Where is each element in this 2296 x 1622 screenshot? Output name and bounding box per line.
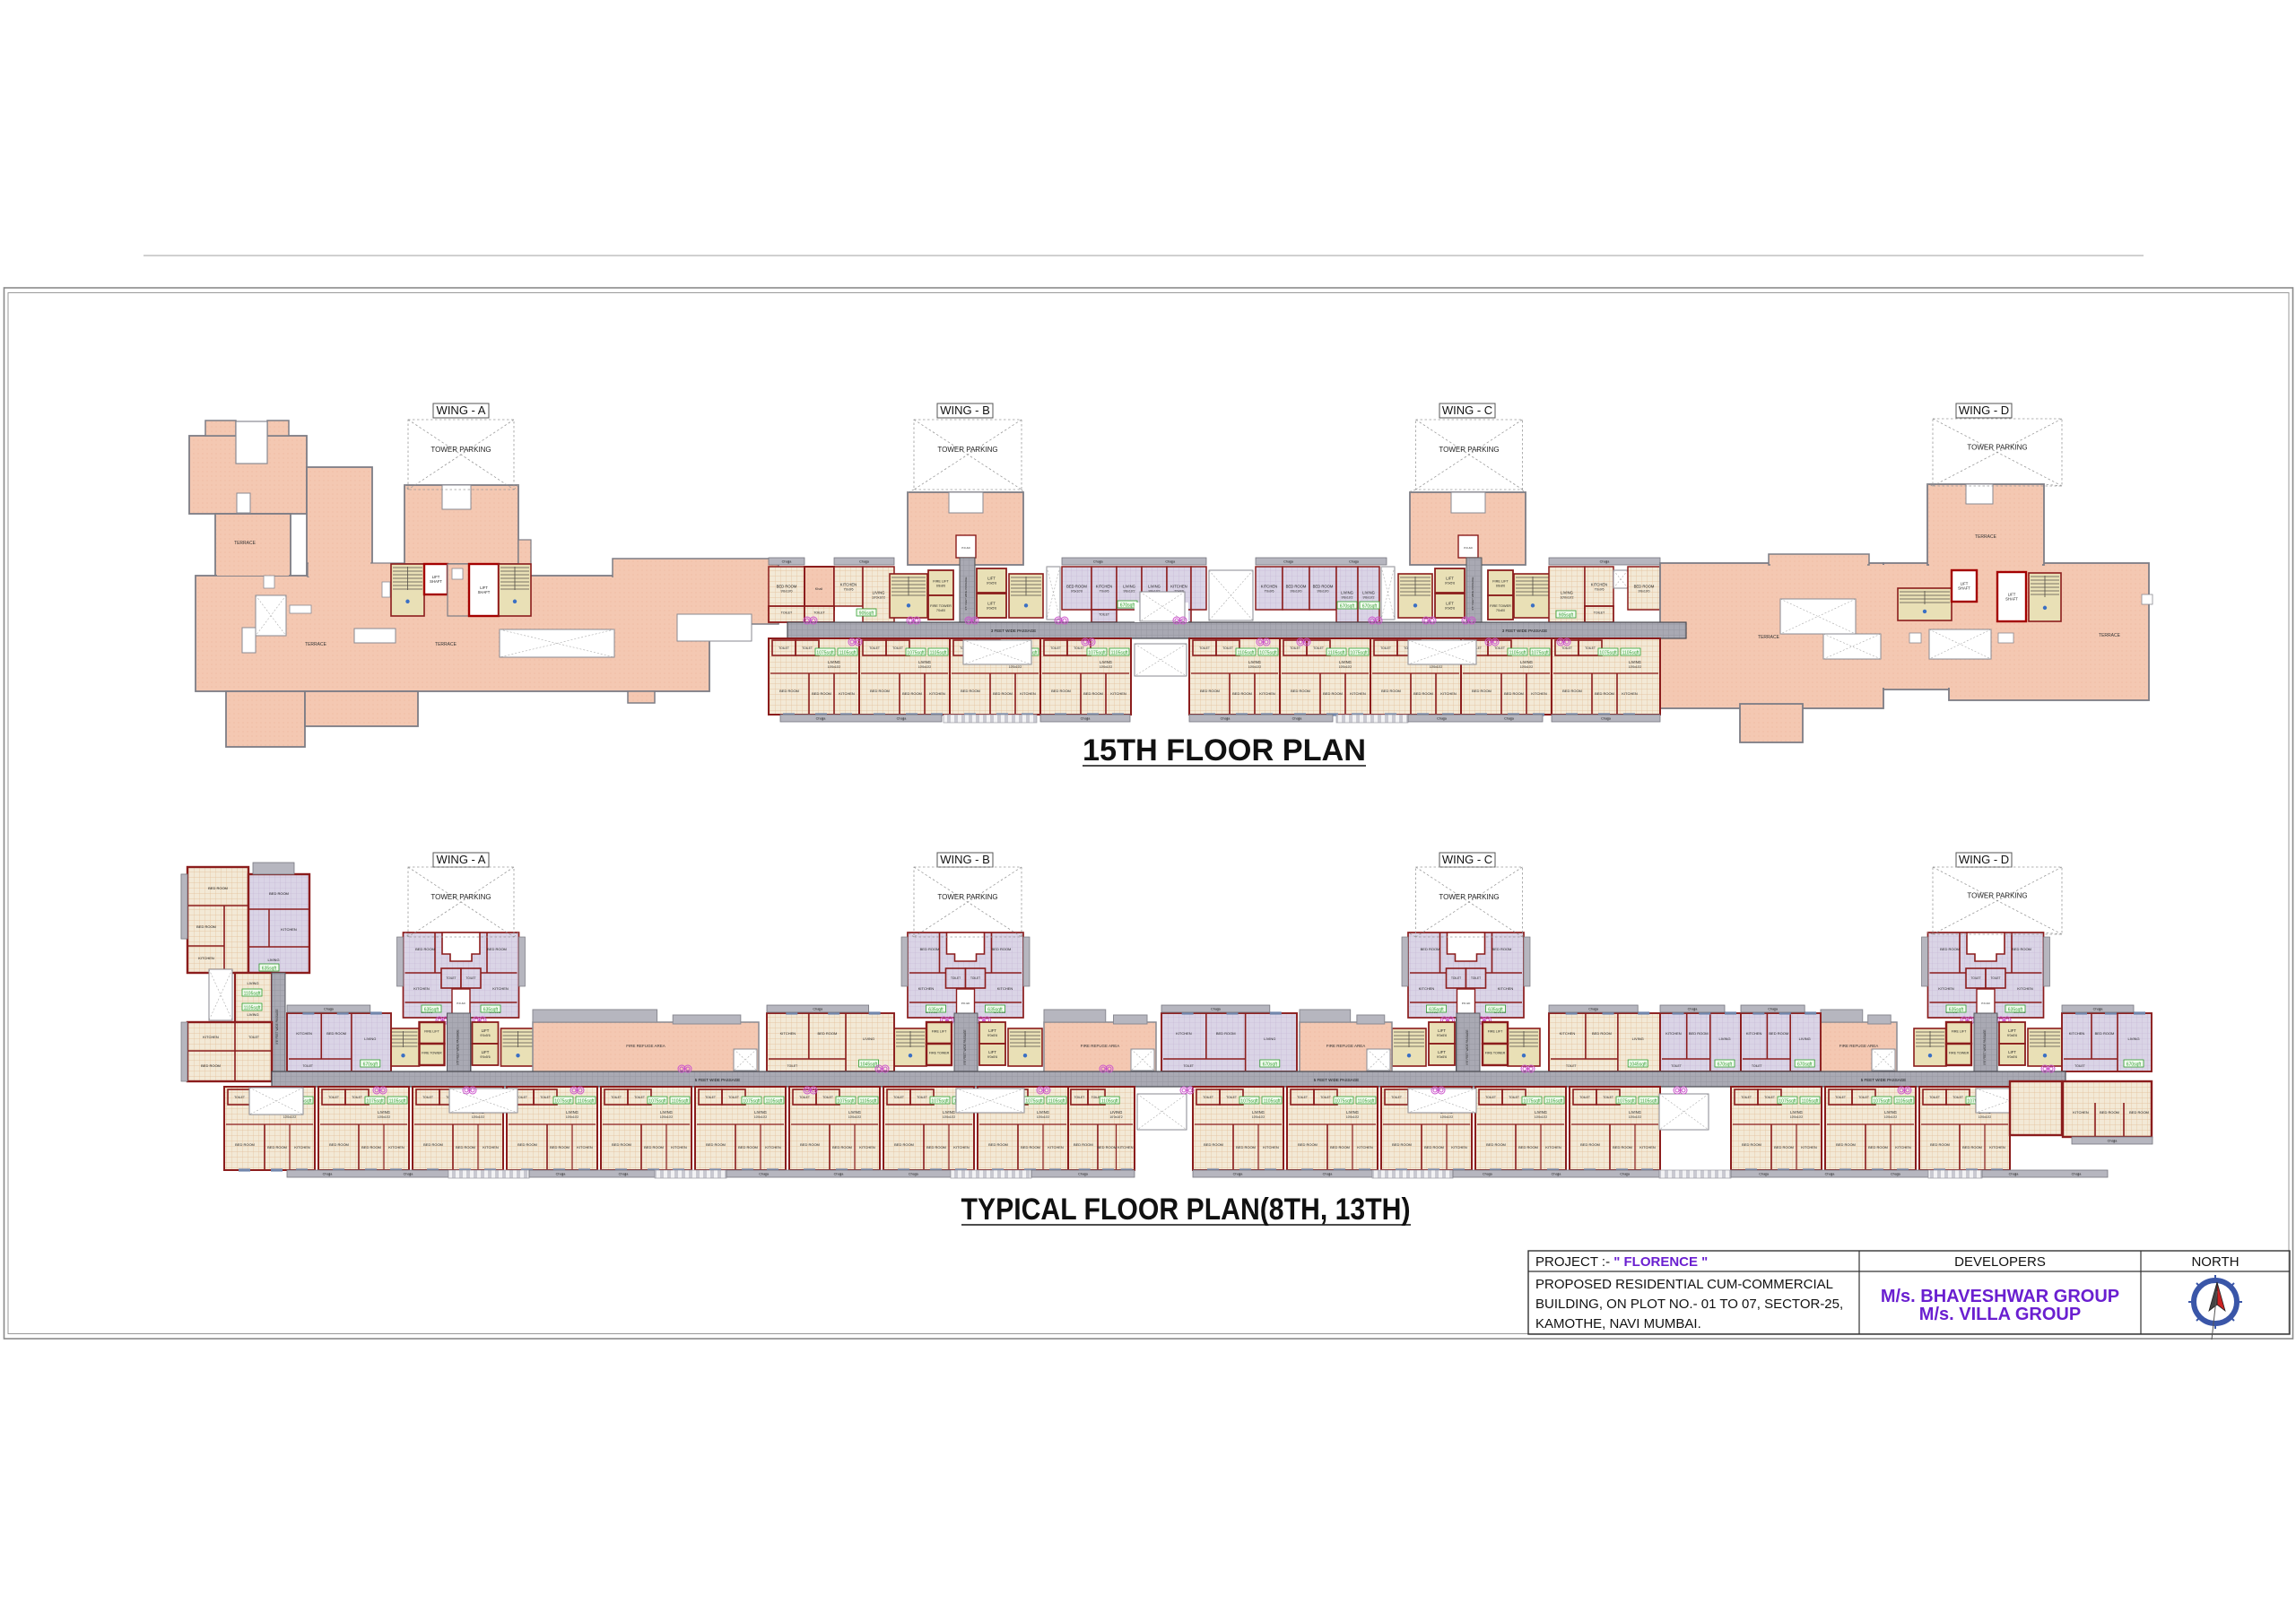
svg-text:10'0x10'2: 10'0x10'2	[848, 1115, 861, 1119]
svg-text:Chajja: Chajja	[1292, 717, 1303, 721]
svg-text:TOILET: TOILET	[1929, 1096, 1940, 1099]
svg-text:3 FEET WIDE PASSAGE: 3 FEET WIDE PASSAGE	[991, 629, 1037, 633]
svg-text:10'0x10'2: 10'0x10'2	[1790, 1115, 1803, 1119]
svg-text:BED ROOM: BED ROOM	[1200, 689, 1220, 693]
svg-text:BED ROOM: BED ROOM	[612, 1142, 631, 1147]
svg-text:BED ROOM: BED ROOM	[329, 1142, 349, 1147]
svg-text:KITCHEN: KITCHEN	[388, 1145, 404, 1149]
svg-text:1105sqft: 1105sqft	[1358, 1099, 1375, 1105]
svg-text:KITCHEN: KITCHEN	[1639, 1145, 1656, 1149]
svg-text:TOILET: TOILET	[352, 1096, 362, 1099]
svg-text:TOWER PARKING: TOWER PARKING	[1967, 892, 2027, 900]
svg-text:Chajja: Chajja	[1081, 717, 1091, 721]
svg-text:WING - C: WING - C	[1442, 853, 1492, 866]
svg-text:TOILET: TOILET	[1297, 1096, 1308, 1099]
svg-text:KITCHEN: KITCHEN	[1261, 585, 1277, 589]
svg-text:WING - D: WING - D	[1959, 403, 2009, 417]
svg-text:KITCHEN: KITCHEN	[2073, 1110, 2089, 1115]
svg-text:LIFT: LIFT	[1438, 1028, 1446, 1033]
svg-text:TOILET: TOILET	[951, 976, 961, 980]
svg-text:10'0x10'2: 10'0x10'2	[1037, 1115, 1049, 1119]
svg-text:10'0x10'2: 10'0x10'2	[1629, 1115, 1641, 1119]
svg-text:LIVING: LIVING	[1632, 1037, 1644, 1041]
svg-text:KITCHEN: KITCHEN	[1665, 1031, 1682, 1036]
svg-text:KITCHEN: KITCHEN	[577, 1145, 593, 1149]
svg-text:TOILET: TOILET	[465, 976, 475, 980]
svg-text:BED ROOM: BED ROOM	[832, 1145, 852, 1149]
svg-text:10'0x10'2: 10'0x10'2	[1109, 1115, 1122, 1119]
svg-text:1105sqft: 1105sqft	[1622, 651, 1639, 656]
svg-text:KITCHEN: KITCHEN	[296, 1031, 312, 1036]
svg-text:BED ROOM: BED ROOM	[870, 689, 890, 693]
svg-text:10'0x10'2: 10'0x10'2	[1248, 665, 1261, 669]
svg-text:TOILET: TOILET	[1835, 1096, 1846, 1099]
svg-text:LIVING: LIVING	[267, 958, 279, 962]
svg-text:TOILET: TOILET	[802, 646, 813, 650]
svg-text:KITCHEN: KITCHEN	[840, 583, 857, 587]
svg-text:905sqft: 905sqft	[859, 612, 874, 617]
svg-text:PROPOSED RESIDENTIAL CUM-COMME: PROPOSED RESIDENTIAL CUM-COMMERCIAL	[1535, 1277, 1833, 1292]
svg-text:FIRE TOWER: FIRE TOWER	[930, 604, 952, 608]
svg-text:670sqft: 670sqft	[1263, 1063, 1278, 1068]
svg-text:KITCHEN: KITCHEN	[1357, 1145, 1373, 1149]
svg-text:1075sqft: 1075sqft	[816, 651, 834, 656]
svg-text:KITCHEN: KITCHEN	[839, 691, 855, 696]
svg-text:WING - D: WING - D	[1959, 853, 2009, 866]
svg-text:TOILET: TOILET	[1313, 646, 1324, 650]
svg-text:TERRACE: TERRACE	[305, 642, 327, 647]
svg-text:BED ROOM: BED ROOM	[1742, 1142, 1761, 1147]
svg-text:9'6x10'2: 9'6x10'2	[1123, 590, 1135, 594]
svg-text:LIVING: LIVING	[1248, 660, 1261, 664]
svg-text:BED ROOM: BED ROOM	[920, 947, 940, 951]
svg-text:TOILET: TOILET	[1074, 1096, 1085, 1099]
svg-text:670sqft: 670sqft	[1718, 1063, 1733, 1068]
svg-text:TYPICAL FLOOR PLAN(8TH, 13TH): TYPICAL FLOOR PLAN(8TH, 13TH)	[961, 1193, 1411, 1227]
svg-text:KITCHEN: KITCHEN	[281, 927, 297, 932]
svg-text:TOILET: TOILET	[248, 1036, 259, 1039]
svg-text:P.D.&D: P.D.&D	[1462, 1002, 1471, 1005]
svg-text:P.D.&D: P.D.&D	[961, 546, 970, 550]
svg-text:LIVING: LIVING	[1346, 1110, 1359, 1115]
svg-text:BED ROOM: BED ROOM	[993, 691, 1013, 696]
svg-text:SHAFT: SHAFT	[2005, 597, 2018, 602]
svg-text:635sqft: 635sqft	[987, 1008, 1003, 1013]
svg-text:KITCHEN: KITCHEN	[671, 1145, 687, 1149]
svg-text:9'6" FEET WIDE PASSAGE: 9'6" FEET WIDE PASSAGE	[457, 1029, 460, 1064]
svg-text:LIVING: LIVING	[566, 1110, 578, 1115]
svg-text:P.D.&D: P.D.&D	[961, 1002, 970, 1005]
svg-text:LIFT: LIFT	[1446, 602, 1454, 606]
svg-text:10'0x10'2: 10'0x10'2	[1520, 665, 1533, 669]
svg-text:9'0x5'6: 9'0x5'6	[1445, 607, 1455, 611]
svg-text:9'6x10'0: 9'6x10'0	[1317, 590, 1328, 594]
svg-text:635sqft: 635sqft	[262, 967, 277, 972]
svg-text:LIVING: LIVING	[1718, 1037, 1730, 1041]
svg-text:TOILET: TOILET	[1471, 976, 1481, 980]
svg-text:10'0x10'2: 10'0x10'2	[1009, 665, 1022, 669]
svg-text:9'0x5'6: 9'0x5'6	[480, 1055, 490, 1059]
svg-text:670sqft: 670sqft	[1120, 603, 1135, 609]
svg-text:BED ROOM: BED ROOM	[644, 1145, 664, 1149]
svg-text:LIVING: LIVING	[863, 1037, 874, 1041]
svg-text:TOILET: TOILET	[1099, 613, 1109, 617]
svg-text:LIFT: LIFT	[1446, 577, 1454, 581]
svg-text:BED ROOM: BED ROOM	[1286, 585, 1307, 589]
svg-text:10'0x10'2: 10'0x10'2	[1252, 1115, 1265, 1119]
svg-text:670sqft: 670sqft	[1362, 604, 1378, 610]
svg-text:KITCHEN: KITCHEN	[2069, 1031, 2085, 1036]
svg-text:KITCHEN: KITCHEN	[1531, 691, 1547, 696]
svg-text:10'0x10'2: 10'0x10'2	[754, 1115, 767, 1119]
svg-text:BED ROOM: BED ROOM	[517, 1142, 537, 1147]
svg-text:BED ROOM: BED ROOM	[1291, 689, 1310, 693]
svg-text:KITCHEN: KITCHEN	[1048, 1145, 1064, 1149]
svg-text:Chajja: Chajja	[1891, 1173, 1901, 1176]
svg-text:TOWER PARKING: TOWER PARKING	[430, 446, 491, 454]
svg-text:Chajja: Chajja	[859, 560, 870, 564]
svg-text:TOILET: TOILET	[446, 976, 456, 980]
svg-text:FIRE LIFT: FIRE LIFT	[1488, 1030, 1503, 1034]
svg-text:KITCHEN: KITCHEN	[953, 1145, 970, 1149]
svg-text:LIVING: LIVING	[1561, 591, 1573, 595]
svg-text:BED ROOM: BED ROOM	[812, 691, 831, 696]
svg-text:TOILET: TOILET	[1050, 646, 1061, 650]
svg-text:BED ROOM: BED ROOM	[1083, 691, 1103, 696]
svg-text:BED ROOM: BED ROOM	[269, 891, 289, 896]
svg-text:BED ROOM: BED ROOM	[326, 1031, 346, 1036]
svg-text:1075sqft: 1075sqft	[1523, 1099, 1541, 1105]
svg-text:LIVING: LIVING	[1520, 660, 1533, 664]
svg-text:BED ROOM: BED ROOM	[1518, 1145, 1538, 1149]
svg-text:1105sqft: 1105sqft	[389, 1099, 406, 1105]
svg-text:TOILET: TOILET	[1222, 646, 1233, 650]
svg-text:BED ROOM: BED ROOM	[1836, 1142, 1856, 1147]
svg-text:WING - B: WING - B	[940, 403, 990, 417]
svg-text:BED ROOM: BED ROOM	[1381, 689, 1401, 693]
svg-text:M/s. VILLA GROUP: M/s. VILLA GROUP	[1919, 1305, 2081, 1324]
svg-text:FIRE LIFT: FIRE LIFT	[1952, 1030, 1967, 1034]
svg-text:Chajja: Chajja	[1588, 1008, 1599, 1011]
svg-text:TOILET: TOILET	[1566, 1064, 1576, 1068]
svg-text:Chajja: Chajja	[2108, 1140, 2118, 1143]
svg-text:Chajja: Chajja	[1221, 717, 1231, 721]
svg-text:10'0x10'2: 10'0x10'2	[378, 1115, 390, 1119]
svg-text:Chajja: Chajja	[1601, 717, 1612, 721]
svg-text:Chajja: Chajja	[1233, 1173, 1244, 1176]
svg-text:KITCHEN: KITCHEN	[203, 1035, 219, 1039]
svg-text:Chajja: Chajja	[1211, 1008, 1222, 1011]
svg-text:LIVING: LIVING	[660, 1110, 673, 1115]
svg-text:KITCHEN: KITCHEN	[1110, 691, 1126, 696]
svg-text:635sqft: 635sqft	[1488, 1008, 1503, 1013]
svg-text:DEVELOPERS: DEVELOPERS	[1954, 1254, 2046, 1270]
svg-text:905sqft: 905sqft	[1559, 613, 1574, 619]
svg-text:TOILET: TOILET	[1203, 1096, 1213, 1099]
svg-text:TOILET: TOILET	[1603, 1096, 1613, 1099]
svg-text:LIVING: LIVING	[1339, 660, 1352, 664]
svg-text:LIVING: LIVING	[1790, 1110, 1803, 1115]
svg-text:TOILET: TOILET	[1764, 1096, 1775, 1099]
svg-text:TOILET: TOILET	[1494, 646, 1505, 650]
svg-text:670sqft: 670sqft	[363, 1063, 378, 1068]
svg-text:LIVING: LIVING	[1252, 1110, 1265, 1115]
svg-text:TERRACE: TERRACE	[234, 541, 257, 546]
svg-text:P.D.&D: P.D.&D	[457, 1002, 465, 1005]
svg-text:Chajja: Chajja	[1825, 1173, 1836, 1176]
svg-text:TOILET: TOILET	[1741, 1096, 1752, 1099]
svg-text:9'6" FEET WIDE PASSAGE: 9'6" FEET WIDE PASSAGE	[1465, 1029, 1469, 1064]
svg-text:1105sqft: 1105sqft	[766, 1099, 783, 1105]
svg-text:BED ROOM: BED ROOM	[926, 1145, 946, 1149]
svg-text:9'6" FEET WIDE PASSAGE: 9'6" FEET WIDE PASSAGE	[1471, 577, 1474, 610]
svg-text:TOILET: TOILET	[1183, 1064, 1193, 1068]
svg-text:KITCHEN: KITCHEN	[198, 956, 214, 960]
svg-text:1105sqft: 1105sqft	[1101, 1099, 1118, 1105]
svg-text:Chajja: Chajja	[816, 717, 827, 721]
svg-text:9'0x5'6: 9'0x5'6	[2007, 1055, 2017, 1059]
svg-text:9'6" FEET WIDE PASSAGE: 9'6" FEET WIDE PASSAGE	[1983, 1029, 1987, 1064]
svg-text:LIFT: LIFT	[988, 1028, 996, 1033]
svg-text:KAMOTHE, NAVI MUMBAI.: KAMOTHE, NAVI MUMBAI.	[1535, 1316, 1701, 1331]
svg-text:KITCHEN: KITCHEN	[859, 1145, 875, 1149]
svg-text:TOWER PARKING: TOWER PARKING	[937, 893, 997, 901]
svg-text:BED ROOM: BED ROOM	[818, 1031, 838, 1036]
svg-text:6'8x8'6: 6'8x8'6	[1496, 585, 1505, 588]
svg-text:KITCHEN: KITCHEN	[1591, 583, 1607, 587]
svg-text:Chajja: Chajja	[897, 717, 908, 721]
svg-text:LIVING: LIVING	[1799, 1037, 1811, 1041]
svg-text:BED ROOM: BED ROOM	[1774, 1145, 1794, 1149]
svg-text:10'0x10'2: 10'0x10'2	[472, 1115, 484, 1119]
svg-text:TOILET: TOILET	[1485, 1096, 1496, 1099]
svg-text:1075sqft: 1075sqft	[907, 651, 925, 656]
svg-text:9'6x10'0: 9'6x10'0	[1071, 590, 1083, 594]
svg-text:KITCHEN: KITCHEN	[1419, 986, 1435, 991]
svg-text:7'0x9'6: 7'0x9'6	[1099, 590, 1109, 594]
svg-text:1105sqft: 1105sqft	[1546, 1099, 1563, 1105]
svg-text:BED ROOM: BED ROOM	[1868, 1145, 1888, 1149]
svg-text:7'0x9'6: 7'0x9'6	[843, 588, 853, 592]
svg-text:BED ROOM: BED ROOM	[415, 947, 435, 951]
svg-text:BED ROOM: BED ROOM	[1962, 1145, 1982, 1149]
svg-text:TOILET: TOILET	[822, 1096, 833, 1099]
svg-text:LIFT: LIFT	[482, 1050, 490, 1054]
svg-text:KITCHEN: KITCHEN	[1440, 691, 1457, 696]
svg-text:KITCHEN: KITCHEN	[1560, 1031, 1576, 1036]
svg-text:WING - B: WING - B	[940, 853, 990, 866]
svg-text:Chajja: Chajja	[1078, 1173, 1089, 1176]
svg-text:Chajja: Chajja	[1600, 560, 1611, 564]
svg-text:BED ROOM: BED ROOM	[1021, 1145, 1040, 1149]
svg-text:LIFT: LIFT	[482, 1028, 490, 1033]
svg-text:6'8x8'6: 6'8x8'6	[936, 585, 945, 588]
svg-text:KITCHEN: KITCHEN	[1622, 691, 1638, 696]
svg-text:BED ROOM: BED ROOM	[201, 1063, 221, 1068]
svg-text:15TH FLOOR PLAN: 15TH FLOOR PLAN	[1083, 733, 1366, 768]
svg-text:LIVING: LIVING	[1362, 591, 1375, 595]
svg-text:Chajja: Chajja	[813, 1008, 823, 1011]
svg-text:1075sqft: 1075sqft	[837, 1099, 855, 1105]
svg-text:PROJECT :- " FLORENCE ": PROJECT :- " FLORENCE "	[1535, 1254, 1708, 1270]
svg-text:Chajja: Chajja	[834, 1173, 845, 1176]
svg-text:BED ROOM: BED ROOM	[267, 1145, 287, 1149]
svg-text:KITCHEN: KITCHEN	[1259, 691, 1275, 696]
svg-text:TOILET: TOILET	[1451, 976, 1461, 980]
svg-text:TOWER PARKING: TOWER PARKING	[1439, 893, 1499, 901]
svg-text:BED ROOM: BED ROOM	[235, 1142, 255, 1147]
svg-text:1105sqft: 1105sqft	[672, 1099, 689, 1105]
svg-text:1075sqft: 1075sqft	[1259, 651, 1277, 656]
svg-text:KITCHEN: KITCHEN	[413, 986, 430, 991]
svg-text:670sqft: 670sqft	[1797, 1063, 1813, 1068]
svg-text:KITCHEN: KITCHEN	[1746, 1031, 1762, 1036]
svg-text:1075sqft: 1075sqft	[1779, 1099, 1796, 1105]
svg-text:FIRE REFUGE AREA: FIRE REFUGE AREA	[626, 1044, 665, 1048]
svg-text:7'0x9'6: 7'0x9'6	[1594, 588, 1604, 592]
svg-text:1105sqft: 1105sqft	[930, 651, 947, 656]
svg-text:BED ROOM: BED ROOM	[1097, 1145, 1117, 1149]
svg-text:BED ROOM: BED ROOM	[2100, 1110, 2119, 1115]
svg-text:TOILET: TOILET	[1226, 1096, 1237, 1099]
svg-text:LIVING: LIVING	[1884, 1110, 1897, 1115]
svg-text:TOILET: TOILET	[1990, 976, 2000, 980]
svg-text:10'0x10'2: 10'0x10'2	[1430, 665, 1442, 669]
svg-text:KITCHEN: KITCHEN	[1938, 986, 1954, 991]
svg-text:1075sqft: 1075sqft	[366, 1099, 384, 1105]
svg-text:10'0x10'2: 10'0x10'2	[566, 1115, 578, 1119]
svg-text:TOILET: TOILET	[1579, 1096, 1590, 1099]
svg-text:TOILET: TOILET	[1320, 1096, 1331, 1099]
svg-text:BED ROOM: BED ROOM	[1216, 1031, 1236, 1036]
svg-text:TOILET: TOILET	[728, 1096, 739, 1099]
svg-text:BED ROOM: BED ROOM	[1562, 689, 1582, 693]
svg-text:Chajja: Chajja	[1093, 560, 1104, 564]
svg-text:KITCHEN: KITCHEN	[780, 1031, 796, 1036]
svg-text:Chajja: Chajja	[1483, 1173, 1493, 1176]
svg-text:1105sqft: 1105sqft	[578, 1099, 595, 1105]
svg-text:BED ROOM: BED ROOM	[1204, 1142, 1223, 1147]
svg-text:TOILET: TOILET	[1561, 646, 1572, 650]
svg-text:BED ROOM: BED ROOM	[1492, 947, 1512, 951]
svg-text:BED ROOM: BED ROOM	[738, 1145, 758, 1149]
svg-text:Chajja: Chajja	[324, 1008, 335, 1011]
svg-text:LIVING: LIVING	[2127, 1037, 2139, 1041]
svg-text:1075sqft: 1075sqft	[1531, 651, 1549, 656]
svg-text:LIVING: LIVING	[754, 1110, 767, 1115]
svg-text:Chajja: Chajja	[404, 1173, 414, 1176]
svg-text:LIVING: LIVING	[1341, 591, 1353, 595]
svg-text:FIRE LIFT: FIRE LIFT	[933, 580, 949, 584]
svg-text:1075sqft: 1075sqft	[1873, 1099, 1891, 1105]
svg-text:TOILET: TOILET	[517, 1096, 527, 1099]
svg-text:10'0x10'2: 10'0x10'2	[943, 1115, 955, 1119]
svg-text:KITCHEN: KITCHEN	[1020, 691, 1036, 696]
svg-text:1105sqft: 1105sqft	[1640, 1099, 1657, 1105]
svg-text:FIRE LIFT: FIRE LIFT	[424, 1030, 439, 1034]
svg-text:KITCHEN: KITCHEN	[765, 1145, 781, 1149]
svg-text:TOILET: TOILET	[234, 1096, 245, 1099]
svg-text:TOILET: TOILET	[892, 646, 903, 650]
svg-text:FIRE TOWER: FIRE TOWER	[1490, 604, 1511, 608]
svg-text:1105sqft: 1105sqft	[839, 651, 857, 656]
svg-text:P.D.&D: P.D.&D	[1464, 546, 1473, 550]
svg-text:635sqft: 635sqft	[424, 1008, 439, 1013]
svg-text:1075sqft: 1075sqft	[1350, 651, 1368, 656]
svg-text:5 FEET WIDE PASSAGE: 5 FEET WIDE PASSAGE	[1861, 1078, 1907, 1082]
svg-text:Chajja: Chajja	[2072, 1173, 2083, 1176]
svg-text:Chajja: Chajja	[782, 560, 793, 564]
svg-text:BED ROOM: BED ROOM	[196, 924, 216, 929]
svg-text:7'0x9'6: 7'0x9'6	[1264, 590, 1274, 594]
svg-text:1075sqft: 1075sqft	[743, 1099, 761, 1105]
svg-text:Chajja: Chajja	[1504, 717, 1515, 721]
svg-text:10'0x10'2: 10'0x10'2	[872, 596, 885, 600]
svg-text:SHAFT: SHAFT	[430, 579, 442, 584]
svg-text:KITCHEN: KITCHEN	[1176, 1031, 1192, 1036]
svg-text:BED ROOM: BED ROOM	[1472, 689, 1492, 693]
svg-text:FIRE TOWER: FIRE TOWER	[1485, 1052, 1506, 1055]
svg-text:1075sqft: 1075sqft	[931, 1099, 949, 1105]
svg-text:1105sqft: 1105sqft	[1264, 1099, 1281, 1105]
svg-text:LIFT: LIFT	[2008, 1028, 2016, 1033]
svg-text:LIVING: LIVING	[1148, 585, 1161, 589]
svg-text:TOILET: TOILET	[634, 1096, 645, 1099]
svg-text:Chajja: Chajja	[323, 1173, 334, 1176]
svg-text:TOILET: TOILET	[1380, 646, 1391, 650]
svg-text:KITCHEN: KITCHEN	[1096, 585, 1112, 589]
svg-text:TOILET: TOILET	[893, 1096, 904, 1099]
svg-text:KITCHEN: KITCHEN	[1263, 1145, 1279, 1149]
svg-text:635sqft: 635sqft	[1429, 1008, 1444, 1013]
svg-text:1075sqft: 1075sqft	[1335, 1099, 1352, 1105]
svg-text:TOILET: TOILET	[970, 976, 980, 980]
svg-text:SHAFT: SHAFT	[478, 590, 491, 594]
svg-text:Chajja: Chajja	[1165, 560, 1176, 564]
svg-text:1105sqft: 1105sqft	[1509, 651, 1526, 656]
svg-text:LIFT: LIFT	[987, 602, 996, 606]
svg-text:FIRE REFUGE AREA: FIRE REFUGE AREA	[1081, 1044, 1120, 1048]
svg-text:TOWER PARKING: TOWER PARKING	[1967, 444, 2027, 452]
svg-text:KITCHEN: KITCHEN	[1498, 986, 1514, 991]
svg-text:10'0x10'2: 10'0x10'2	[918, 665, 931, 669]
svg-text:BED ROOM: BED ROOM	[1769, 1031, 1788, 1036]
svg-text:LIVING: LIVING	[943, 1110, 955, 1115]
svg-text:Chajja: Chajja	[1323, 1173, 1334, 1176]
svg-text:BED ROOM: BED ROOM	[1613, 1145, 1632, 1149]
svg-text:BED ROOM: BED ROOM	[1232, 691, 1252, 696]
svg-text:KITCHEN: KITCHEN	[1451, 1145, 1467, 1149]
svg-text:LIVING: LIVING	[1264, 1037, 1275, 1041]
svg-text:SHAFT: SHAFT	[1958, 586, 1970, 591]
svg-text:BED ROOM: BED ROOM	[1689, 1031, 1709, 1036]
svg-text:10'0x10'2: 10'0x10'2	[660, 1115, 673, 1119]
svg-text:1075sqft: 1075sqft	[554, 1099, 572, 1105]
svg-text:BED ROOM: BED ROOM	[1051, 689, 1071, 693]
svg-text:TERRACE: TERRACE	[1758, 635, 1780, 640]
svg-text:9'0x5'6: 9'0x5'6	[1445, 582, 1455, 585]
svg-text:BUILDING, ON PLOT NO.- 01 TO 0: BUILDING, ON PLOT NO.- 01 TO 07, SECTOR-…	[1535, 1297, 1843, 1312]
svg-text:1075sqft: 1075sqft	[1240, 1099, 1258, 1105]
svg-text:1045sqft: 1045sqft	[860, 1063, 878, 1068]
svg-text:TOILET: TOILET	[1199, 646, 1210, 650]
svg-text:TOILET: TOILET	[778, 646, 789, 650]
svg-text:10'0x10'2: 10'0x10'2	[828, 665, 840, 669]
svg-text:TOILET: TOILET	[1952, 1096, 1963, 1099]
svg-text:1105sqft: 1105sqft	[860, 1099, 877, 1105]
svg-text:TERRACE: TERRACE	[2099, 633, 2121, 638]
svg-text:1075sqft: 1075sqft	[1025, 1099, 1043, 1105]
